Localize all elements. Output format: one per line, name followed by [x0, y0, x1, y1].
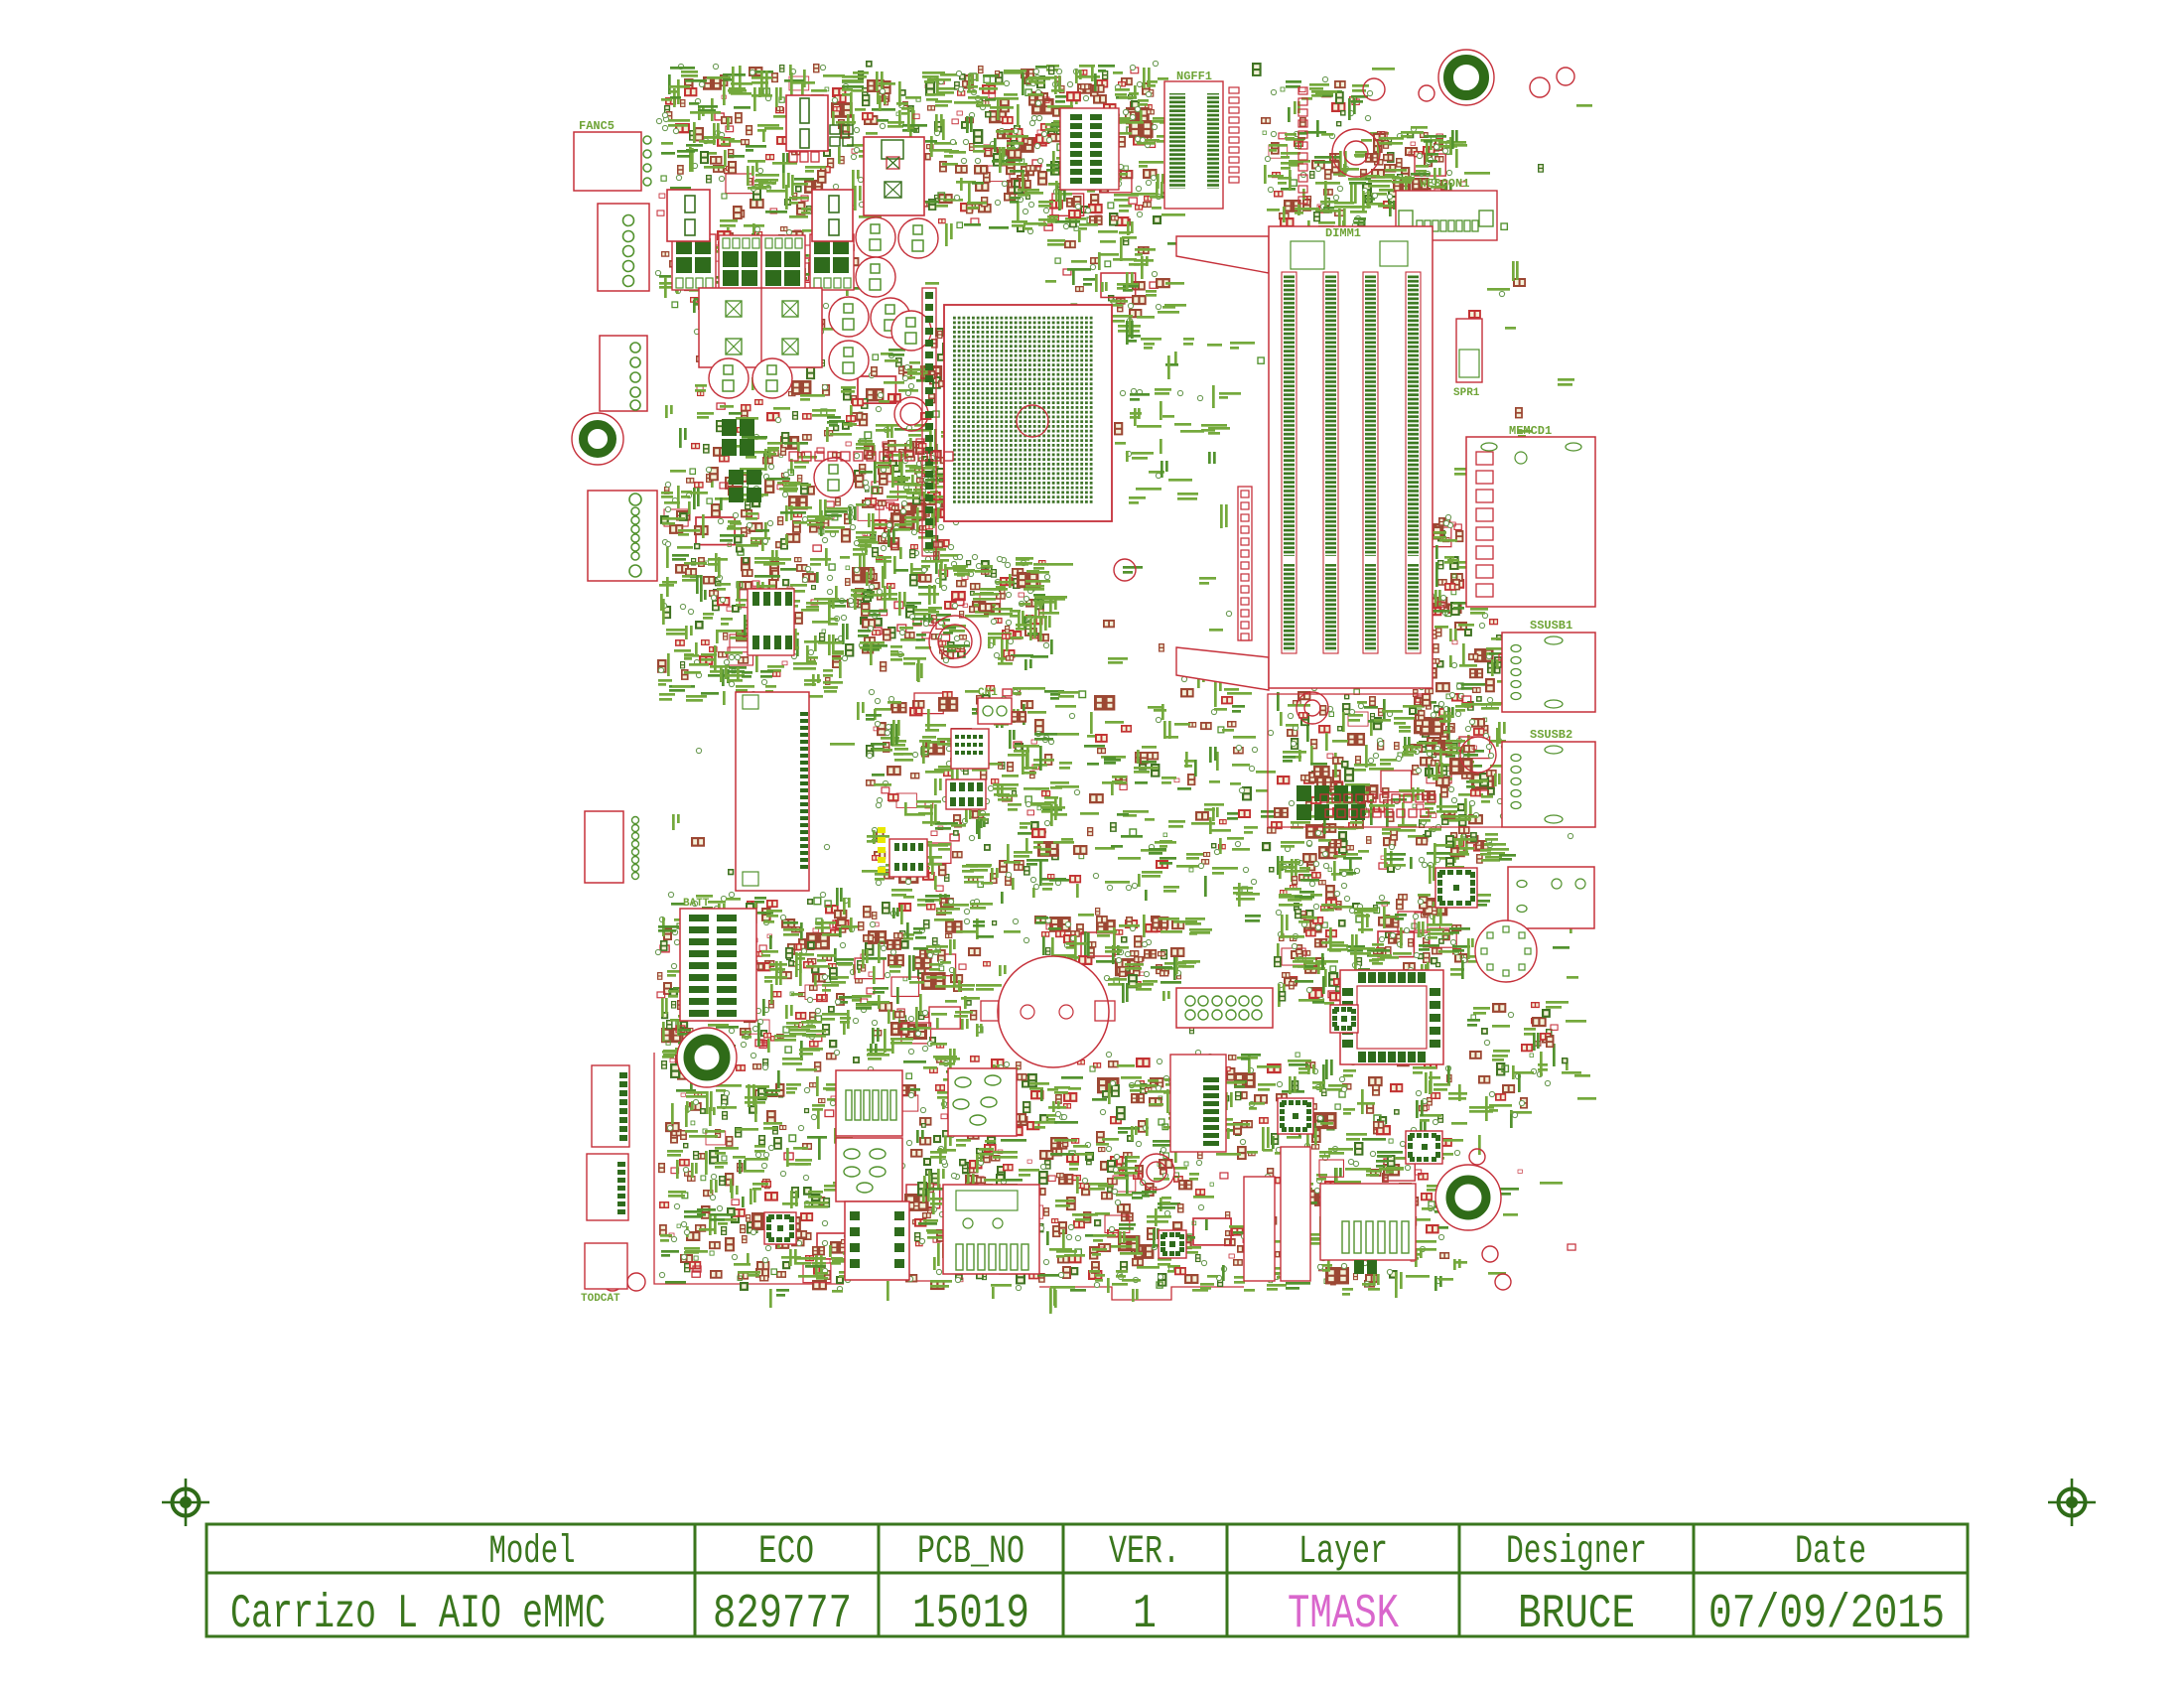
svg-text:SSUSB1: SSUSB1 [1530, 619, 1572, 633]
svg-text:TODCAT: TODCAT [581, 1293, 620, 1305]
svg-text:1: 1 [1133, 1588, 1157, 1641]
svg-text:VER.: VER. [1109, 1530, 1180, 1575]
svg-text:829777: 829777 [713, 1588, 852, 1641]
svg-text:ECO: ECO [758, 1530, 814, 1575]
svg-text:NGFF1: NGFF1 [1176, 70, 1212, 83]
svg-text:SSUSB2: SSUSB2 [1530, 728, 1572, 742]
svg-text:Designer: Designer [1506, 1530, 1647, 1575]
svg-text:PCB_NO: PCB_NO [917, 1530, 1024, 1575]
svg-text:FANC5: FANC5 [579, 119, 614, 133]
svg-text:WEBCON1: WEBCON1 [1420, 177, 1469, 191]
svg-text:07/09/2015: 07/09/2015 [1708, 1588, 1945, 1641]
svg-text:Layer: Layer [1298, 1530, 1388, 1575]
svg-text:CN1: CN1 [978, 687, 998, 699]
svg-text:Carrizo L AIO eMMC: Carrizo L AIO eMMC [230, 1588, 606, 1641]
svg-text:DIMM1: DIMM1 [1325, 226, 1361, 240]
svg-text:Date: Date [1795, 1530, 1866, 1575]
svg-text:15019: 15019 [912, 1588, 1029, 1641]
svg-text:Model: Model [489, 1530, 576, 1575]
svg-text:TMASK: TMASK [1288, 1588, 1399, 1641]
svg-text:BRUCE: BRUCE [1518, 1588, 1635, 1641]
svg-text:MEMCD1: MEMCD1 [1509, 424, 1552, 438]
svg-text:SPR1: SPR1 [1453, 387, 1480, 399]
svg-text:BATT: BATT [683, 898, 710, 910]
